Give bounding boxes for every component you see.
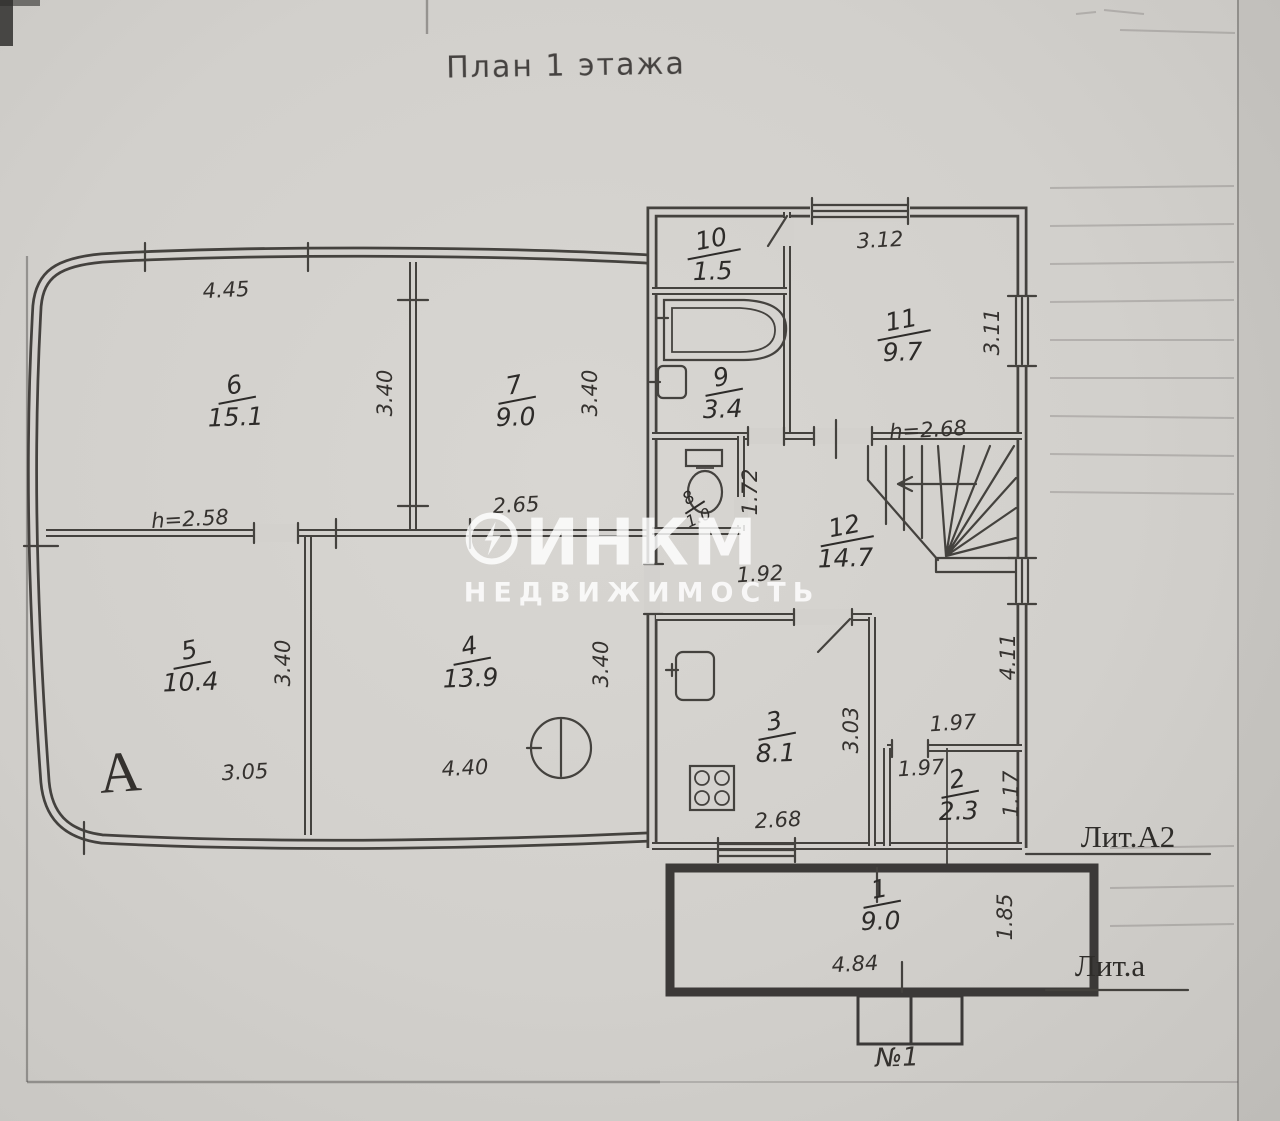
dim-room3-right: 3.03 [839,707,863,754]
dim-room2-inner: 1.97 [897,755,945,781]
dim-hall-left: 1.92 [736,561,784,587]
room-label-11: 119.7 [874,307,930,366]
room-label-9: 93.4 [701,364,743,422]
room-label-12: 1214.7 [816,513,874,572]
dim-sec2-top: 3.12 [856,227,904,253]
dim-room5-bottom: 3.05 [221,759,269,785]
room-label-7: 79.0 [494,372,536,430]
room-label-10: 101.5 [684,226,740,285]
mark-porch-number: №1 [875,1042,920,1074]
room-label-5: 510.4 [161,637,219,696]
page-title: План 1 этажа [446,46,686,85]
dim-room1-bottom: 4.84 [831,951,879,977]
mark-building-letter: А [97,737,143,807]
dim-room4-bottom: 4.40 [441,755,489,781]
mark-lit-a: Лит.а [1075,948,1145,984]
dim-room7-right: 3.40 [578,370,602,417]
room-label-4: 413.9 [441,633,499,692]
dim-room6-top: 4.45 [202,277,250,303]
mark-lit-a2: Лит.А2 [1081,819,1175,855]
dim-room6-right: 3.40 [373,370,397,417]
dim-room11-right: 3.11 [980,309,1004,356]
dim-room4-right: 3.40 [589,641,613,688]
dim-hall-right: 4.11 [996,634,1020,681]
room-label-1: 19.0 [859,876,901,934]
dim-room3-bottom: 2.68 [754,807,802,833]
dim-hall-height: h=2.68 [889,416,968,444]
room-label-6: 615.1 [206,372,264,431]
dim-room5-right: 3.40 [271,640,295,687]
dim-room6-height: h=2.58 [151,505,230,533]
dim-room2-right: 1.17 [999,771,1023,818]
scanned-floorplan-page: План 1 этажа 19.0 22.3 38.1 413.9 510.4 … [0,0,1280,1121]
dim-room7-bottom: 2.65 [492,492,540,518]
dim-wc-side: 1.72 [738,469,762,516]
dim-room1-right: 1.85 [993,894,1017,941]
dim-room2-above: 1.97 [929,710,977,736]
room-label-3: 38.1 [754,708,796,766]
